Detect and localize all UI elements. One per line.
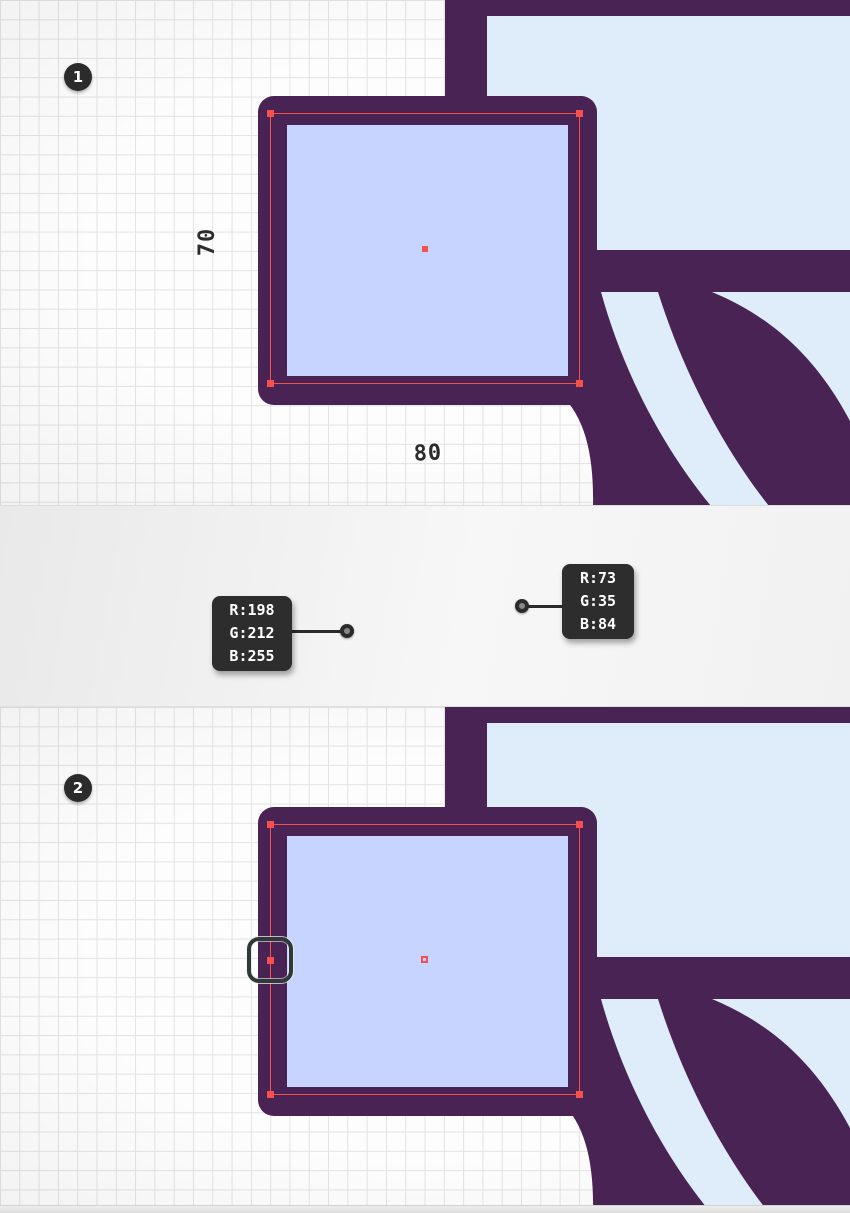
anchor-top-right[interactable]	[576, 821, 583, 828]
anchor-highlight-box	[247, 937, 293, 983]
selection-path	[270, 824, 580, 1095]
center-point[interactable]	[422, 246, 428, 252]
anchor-top-left[interactable]	[267, 821, 274, 828]
step2-artboard: 2	[0, 707, 850, 1213]
fill-rgb-callout: R:198 G:212 B:255	[212, 596, 292, 671]
step-number-badge: 1	[64, 63, 92, 91]
anchor-bottom-left[interactable]	[267, 380, 274, 387]
tutorial-image: 1 70 80 « × Appearance Path	[0, 0, 850, 1213]
section-divider	[0, 1205, 850, 1213]
anchor-bottom-right[interactable]	[576, 380, 583, 387]
step-number-badge: 2	[64, 774, 92, 802]
panel-section-background: « × Appearance Path	[0, 505, 850, 707]
anchor-bottom-left[interactable]	[267, 1091, 274, 1098]
width-dimension-label: 80	[405, 439, 450, 469]
stroke-connector-dot	[515, 599, 529, 613]
selection-path	[270, 113, 580, 384]
anchor-top-right[interactable]	[576, 110, 583, 117]
center-point[interactable]	[421, 956, 428, 963]
step1-artboard: 1 70 80	[0, 0, 850, 505]
stroke-connector-line	[527, 605, 565, 608]
stroke-rgb-callout: R:73 G:35 B:84	[562, 564, 634, 639]
anchor-top-left[interactable]	[267, 110, 274, 117]
anchor-bottom-right[interactable]	[576, 1091, 583, 1098]
fill-connector-dot	[340, 624, 354, 638]
height-dimension-label: 70	[194, 220, 222, 264]
